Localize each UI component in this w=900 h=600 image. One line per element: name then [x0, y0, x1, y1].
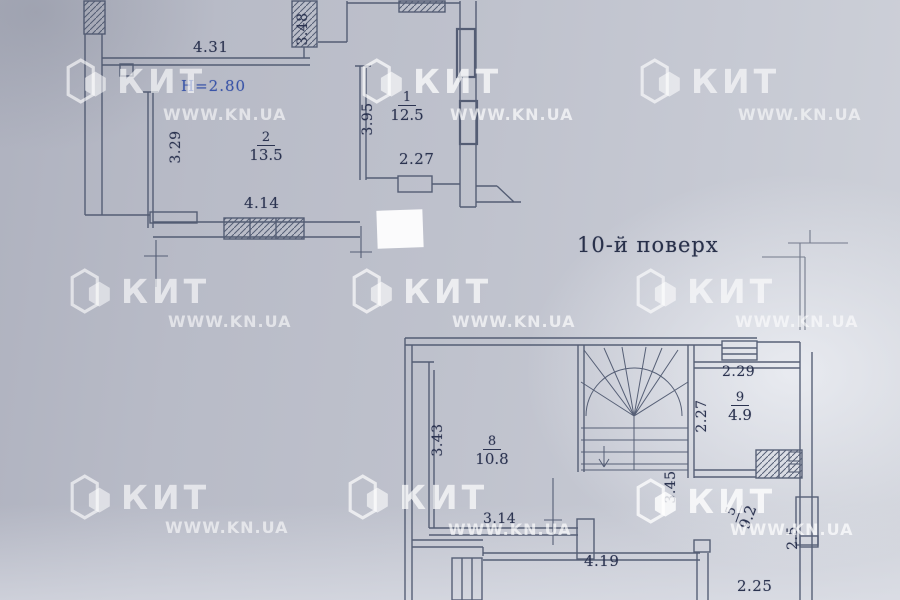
room-number: 9 [731, 391, 749, 406]
watermark-brand: КИТ [413, 62, 502, 101]
watermark-brand: КИТ [687, 272, 776, 311]
watermark-logo-icon [348, 474, 390, 520]
wall-detail [722, 341, 757, 360]
watermark-brand: КИТ [687, 482, 776, 521]
watermark-url: WWW.KN.UA [730, 520, 853, 539]
watermark-brand: КИТ [117, 62, 206, 101]
watermark: КИТ [640, 58, 780, 104]
watermark-url: WWW.KN.UA [163, 105, 286, 124]
watermark-brand: КИТ [121, 478, 210, 517]
hatched-window [224, 218, 304, 239]
room-label-9: 9 4.9 [712, 386, 768, 423]
watermark-url: WWW.KN.UA [450, 105, 573, 124]
room-label-2: 2 13.5 [236, 126, 296, 163]
watermark: КИТ [636, 478, 776, 524]
dimension-label-r1-width: 2.27 [399, 150, 434, 168]
watermark-url: WWW.KN.UA [452, 312, 575, 331]
watermark-logo-icon [352, 268, 394, 314]
room-area: 13.5 [236, 147, 296, 163]
room-number: 2 [257, 131, 275, 146]
dimension-label-room9-top: 2.29 [722, 364, 755, 380]
dimension-label-bottom: 4.19 [584, 552, 619, 570]
whiteout-patch [376, 209, 423, 249]
watermark-brand: КИТ [403, 272, 492, 311]
watermark: КИТ [70, 268, 210, 314]
dimension-label-right-top: 3.48 [295, 7, 311, 51]
floor-title: 10-й поверх [577, 233, 719, 257]
watermark-logo-icon [66, 58, 108, 104]
watermark-logo-icon [362, 58, 404, 104]
watermark-logo-icon [636, 268, 678, 314]
dimension-label-top: 4.31 [193, 38, 228, 56]
dimension-label-bottom-right: 2.25 [737, 577, 772, 595]
watermark: КИТ [70, 474, 210, 520]
dimension-label-room8-left: 3.43 [430, 418, 446, 462]
watermark-url: WWW.KN.UA [165, 518, 288, 537]
watermark-logo-icon [636, 478, 678, 524]
scanned-floor-plan-page: 4.31 3.48 H=2.80 3.29 2 13.5 3.95 1 12.5… [0, 0, 900, 600]
watermark-url: WWW.KN.UA [168, 312, 291, 331]
staircase [581, 347, 688, 470]
watermark: КИТ [636, 268, 776, 314]
room-area: 4.9 [712, 407, 768, 423]
dimension-label-room9-left: 2.27 [694, 394, 710, 438]
watermark-logo-icon [70, 474, 112, 520]
hatched-window [399, 1, 445, 12]
watermark-url: WWW.KN.UA [738, 105, 861, 124]
room-number: 8 [483, 435, 501, 450]
dimension-label-left: 3.29 [168, 125, 184, 169]
dimension-label-bottom: 4.14 [244, 194, 279, 212]
hatched-wall-block [84, 1, 105, 34]
watermark-brand: КИТ [121, 272, 210, 311]
watermark: КИТ [362, 58, 502, 104]
wall-pillar [452, 558, 482, 600]
watermark-logo-icon [640, 58, 682, 104]
watermark-brand: КИТ [691, 62, 780, 101]
watermark-brand: КИТ [399, 478, 488, 517]
watermark: КИТ [352, 268, 492, 314]
room-area: 12.5 [377, 107, 437, 123]
watermark: КИТ [66, 58, 206, 104]
watermark: КИТ [348, 474, 488, 520]
watermark-url: WWW.KN.UA [448, 520, 571, 539]
room-area: 10.8 [462, 451, 522, 467]
watermark-logo-icon [70, 268, 112, 314]
watermark-url: WWW.KN.UA [735, 312, 858, 331]
room-label-8: 8 10.8 [462, 430, 522, 467]
